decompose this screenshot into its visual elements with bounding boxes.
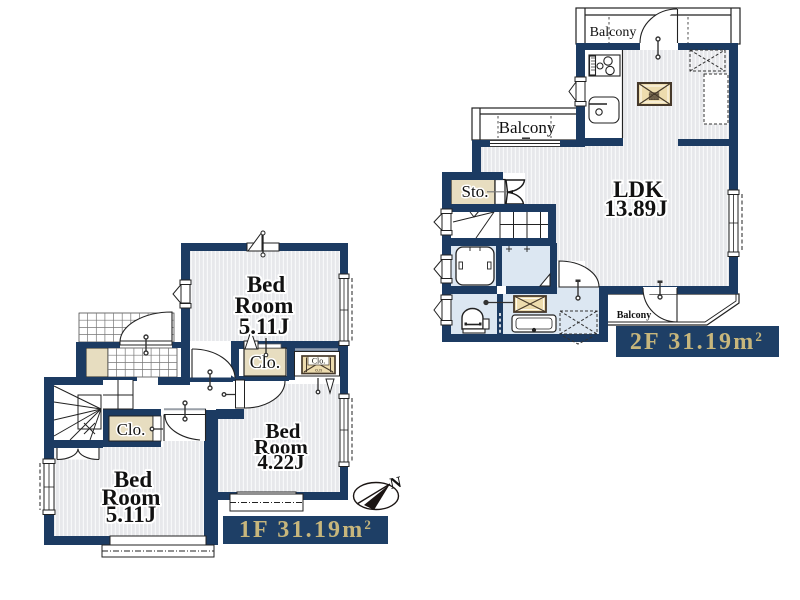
svg-text:Sto.: Sto. bbox=[462, 182, 489, 201]
svg-text:Balcony: Balcony bbox=[590, 25, 637, 40]
svg-text:o.n: o.n bbox=[315, 368, 322, 374]
svg-text:2F 31.19m2: 2F 31.19m2 bbox=[630, 329, 764, 355]
svg-text:13.89J: 13.89J bbox=[604, 196, 667, 221]
svg-text:1F 31.19m2: 1F 31.19m2 bbox=[239, 517, 373, 543]
svg-text:4.22J: 4.22J bbox=[257, 450, 304, 474]
svg-text:5.11J: 5.11J bbox=[239, 314, 289, 339]
svg-text:Clo.: Clo. bbox=[312, 357, 326, 366]
svg-text:Balcony: Balcony bbox=[499, 118, 556, 137]
svg-text:Clo.: Clo. bbox=[117, 420, 146, 439]
svg-text:Balcony: Balcony bbox=[617, 310, 651, 321]
svg-text:5.11J: 5.11J bbox=[106, 502, 156, 527]
svg-text:▓▓: ▓▓ bbox=[649, 92, 660, 100]
